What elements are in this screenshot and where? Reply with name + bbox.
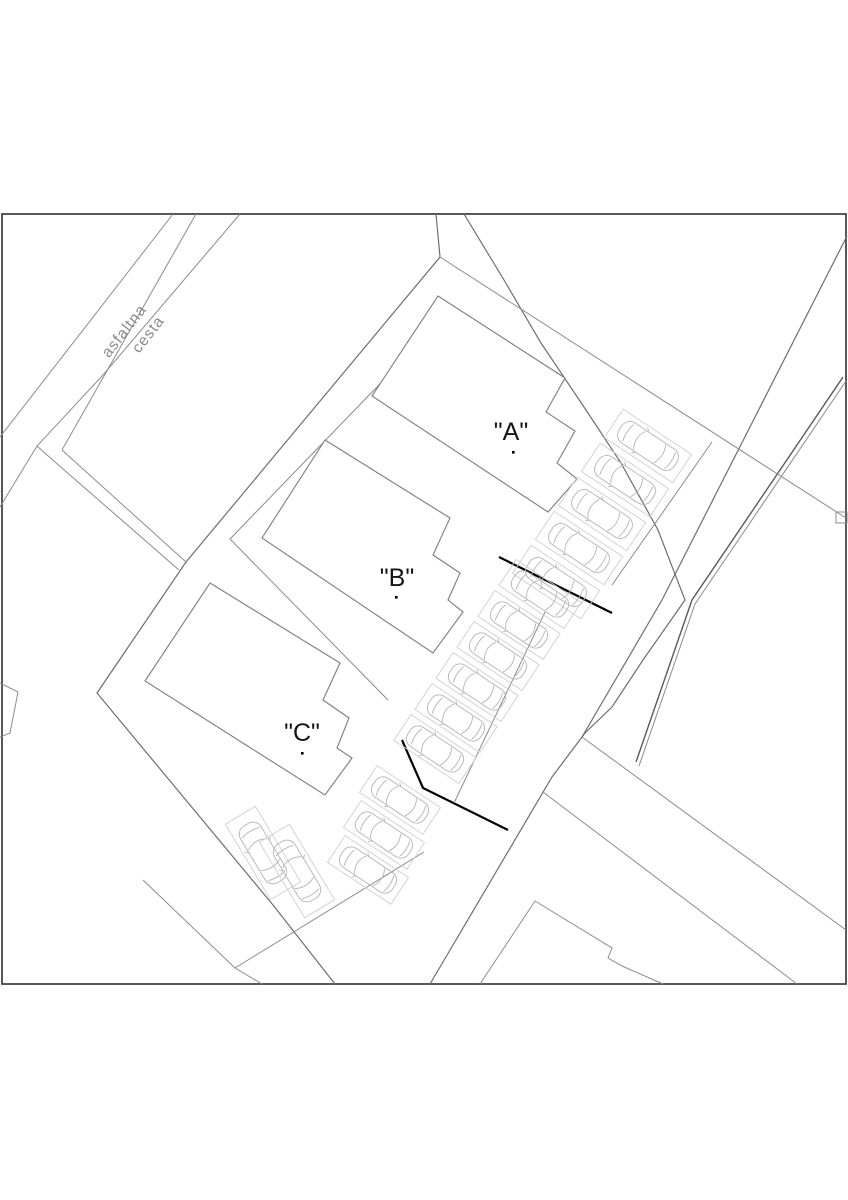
building-b-label: "B" [380,564,414,592]
building-b-reference-dot [395,596,398,599]
building-c-label: "C" [284,719,320,747]
site-plan-drawing: "A" "B" "C" asfaltna cesta [0,0,848,1200]
building-a-reference-dot [512,451,515,454]
building-c-reference-dot [301,752,304,755]
building-a-label: "A" [494,418,528,446]
